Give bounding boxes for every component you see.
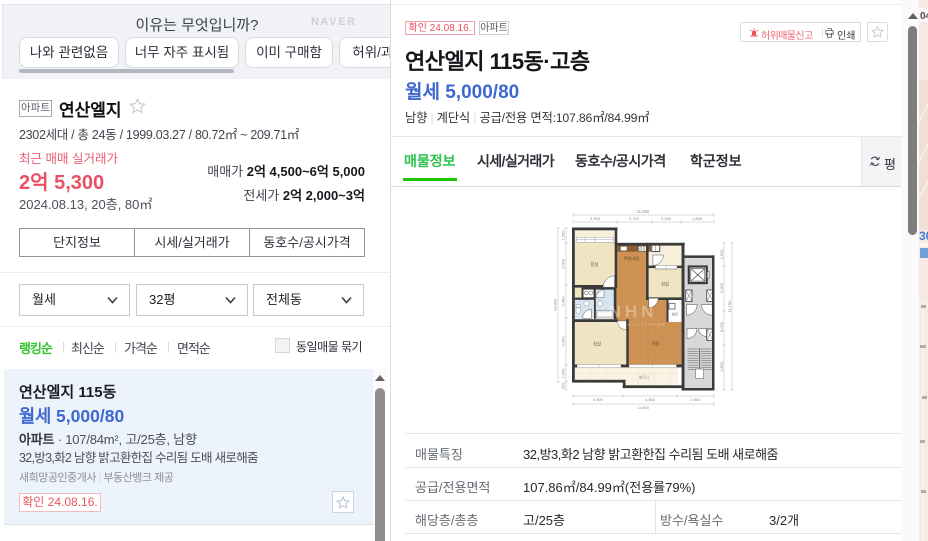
svg-text:현관: 현관 — [672, 312, 678, 317]
svg-text:NHN: NHN — [609, 302, 658, 321]
svg-text:4,500: 4,500 — [645, 397, 656, 402]
svg-text:주방/식당: 주방/식당 — [624, 256, 640, 261]
svg-text:8,090: 8,090 — [719, 321, 724, 332]
svg-text:11,750: 11,750 — [727, 300, 732, 313]
svg-text:3,060: 3,060 — [561, 336, 566, 347]
svg-text:BUSINESS PLATFORM: BUSINESS PLATFORM — [600, 322, 665, 327]
svg-text:11,900: 11,900 — [637, 405, 650, 410]
svg-text:2,000: 2,000 — [661, 216, 672, 221]
svg-text:3,000: 3,000 — [561, 258, 566, 269]
svg-text:1,500: 1,500 — [561, 368, 566, 379]
svg-text:1,600: 1,600 — [719, 249, 724, 260]
svg-text:2,900: 2,900 — [690, 397, 701, 402]
svg-text:2,700: 2,700 — [629, 216, 640, 221]
svg-text:침실: 침실 — [661, 281, 669, 287]
svg-text:11,900: 11,900 — [637, 209, 650, 214]
svg-text:1,800: 1,800 — [692, 216, 703, 221]
svg-text:침실: 침실 — [593, 341, 601, 347]
svg-text:10,800: 10,800 — [553, 298, 558, 311]
svg-text:3,300: 3,300 — [590, 216, 601, 221]
svg-text:04: 04 — [920, 11, 928, 22]
svg-text:4,500: 4,500 — [593, 397, 604, 402]
svg-text:침실: 침실 — [591, 261, 599, 267]
svg-text:1,800: 1,800 — [719, 361, 724, 372]
svg-text:거실: 거실 — [651, 340, 659, 347]
svg-text:5,500: 5,500 — [719, 282, 724, 293]
svg-text:발코니: 발코니 — [639, 375, 649, 380]
svg-text:350: 350 — [561, 382, 566, 389]
svg-text:2,400: 2,400 — [561, 296, 566, 307]
svg-text:1,500: 1,500 — [561, 230, 566, 241]
svg-text:30: 30 — [919, 229, 928, 243]
